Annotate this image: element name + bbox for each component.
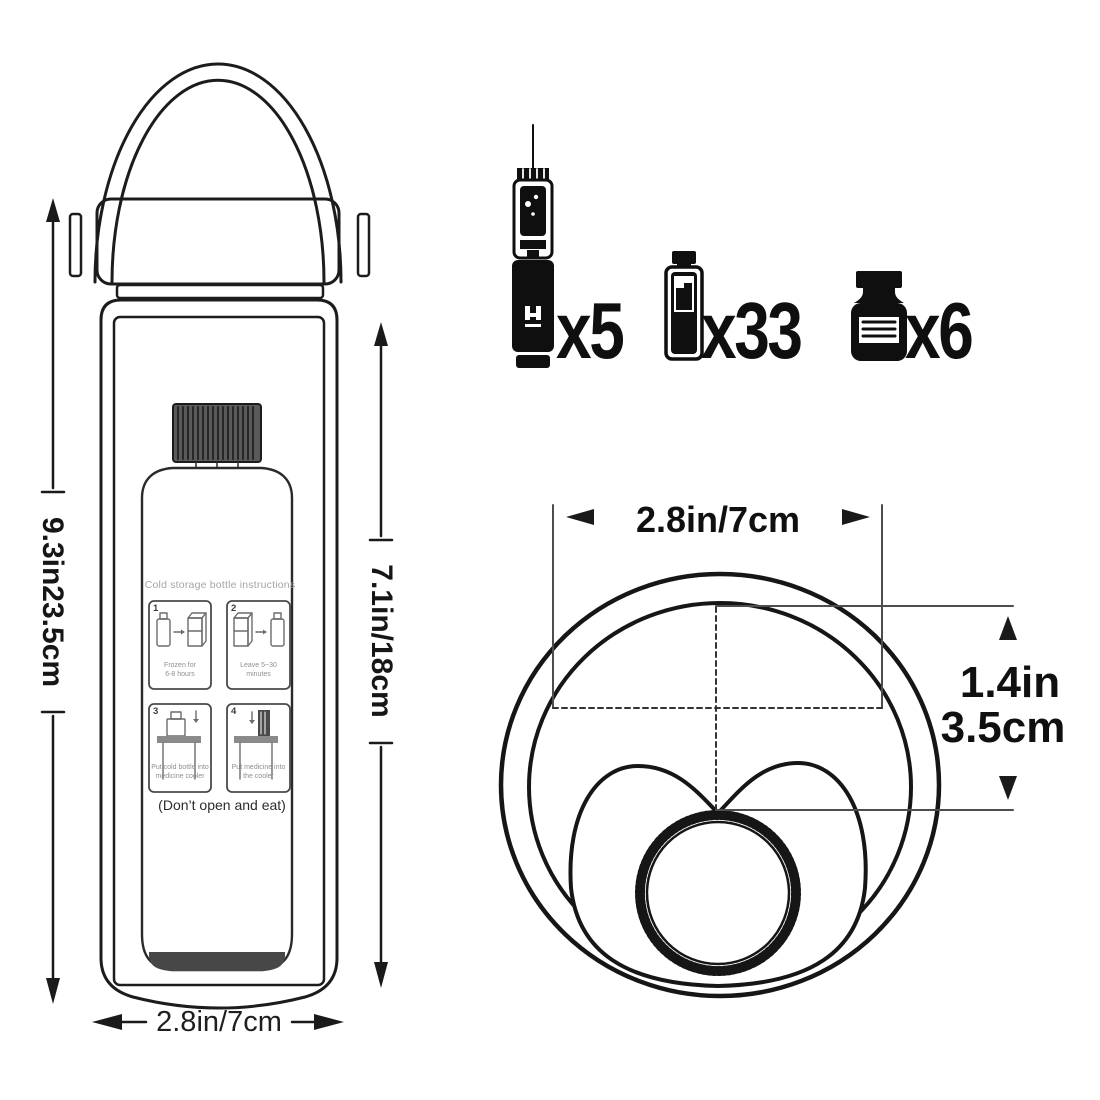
step-number: 4 bbox=[231, 707, 236, 717]
height-dimension-label: 9.3in23.5cm bbox=[35, 517, 69, 687]
step-caption-line: the cooler bbox=[227, 772, 290, 781]
step-caption: Put cold bottle into medicine cooler bbox=[149, 763, 211, 781]
bottle-lid bbox=[97, 199, 339, 284]
step-caption-line: 6-8 hours bbox=[149, 670, 211, 679]
step-number: 1 bbox=[153, 604, 158, 614]
step-caption-line: Put cold bottle into bbox=[149, 763, 211, 772]
step-number: 3 bbox=[153, 707, 158, 717]
step-caption: Leave 5~30 minutes bbox=[227, 661, 290, 679]
product-dimension-diagram: 9.3in23.5cm 7.1in/18cm 2.8in/7cm Cold st… bbox=[0, 0, 1100, 1100]
vial-count-label: x6 bbox=[905, 291, 971, 371]
bottle-collar bbox=[117, 285, 323, 298]
inner-height-dimension-label: 7.1in/18cm bbox=[364, 564, 398, 717]
step-caption-line: minutes bbox=[227, 670, 290, 679]
step-caption-line: Put medicine into bbox=[227, 763, 290, 772]
step-caption-line: Frozen for bbox=[149, 661, 211, 670]
bottle-width-label: 2.8in/7cm bbox=[144, 1006, 294, 1039]
top-view-depth-cm-label: 3.5cm bbox=[928, 706, 1078, 751]
step-caption-line: Leave 5~30 bbox=[227, 661, 290, 670]
top-view-circle bbox=[501, 574, 939, 996]
pen-count-label: x5 bbox=[556, 291, 622, 371]
bottle-label-title: Cold storage bottle instructions bbox=[140, 579, 300, 591]
step-caption: Frozen for 6-8 hours bbox=[149, 661, 211, 679]
step-caption-line: medicine cooler bbox=[149, 772, 211, 781]
top-view-depth-in-label: 1.4in bbox=[935, 661, 1085, 706]
cartridge-icon bbox=[666, 251, 702, 359]
insulin-pen-icon bbox=[512, 125, 554, 368]
line-art bbox=[0, 0, 1100, 1100]
top-view-diameter-label: 2.8in/7cm bbox=[608, 499, 828, 541]
vial-icon bbox=[851, 271, 907, 361]
warning-text: (Don’t open and eat) bbox=[138, 797, 306, 813]
step-number: 2 bbox=[231, 604, 236, 614]
cartridge-count-label: x33 bbox=[701, 291, 801, 371]
step-caption: Put medicine into the cooler bbox=[227, 763, 290, 781]
